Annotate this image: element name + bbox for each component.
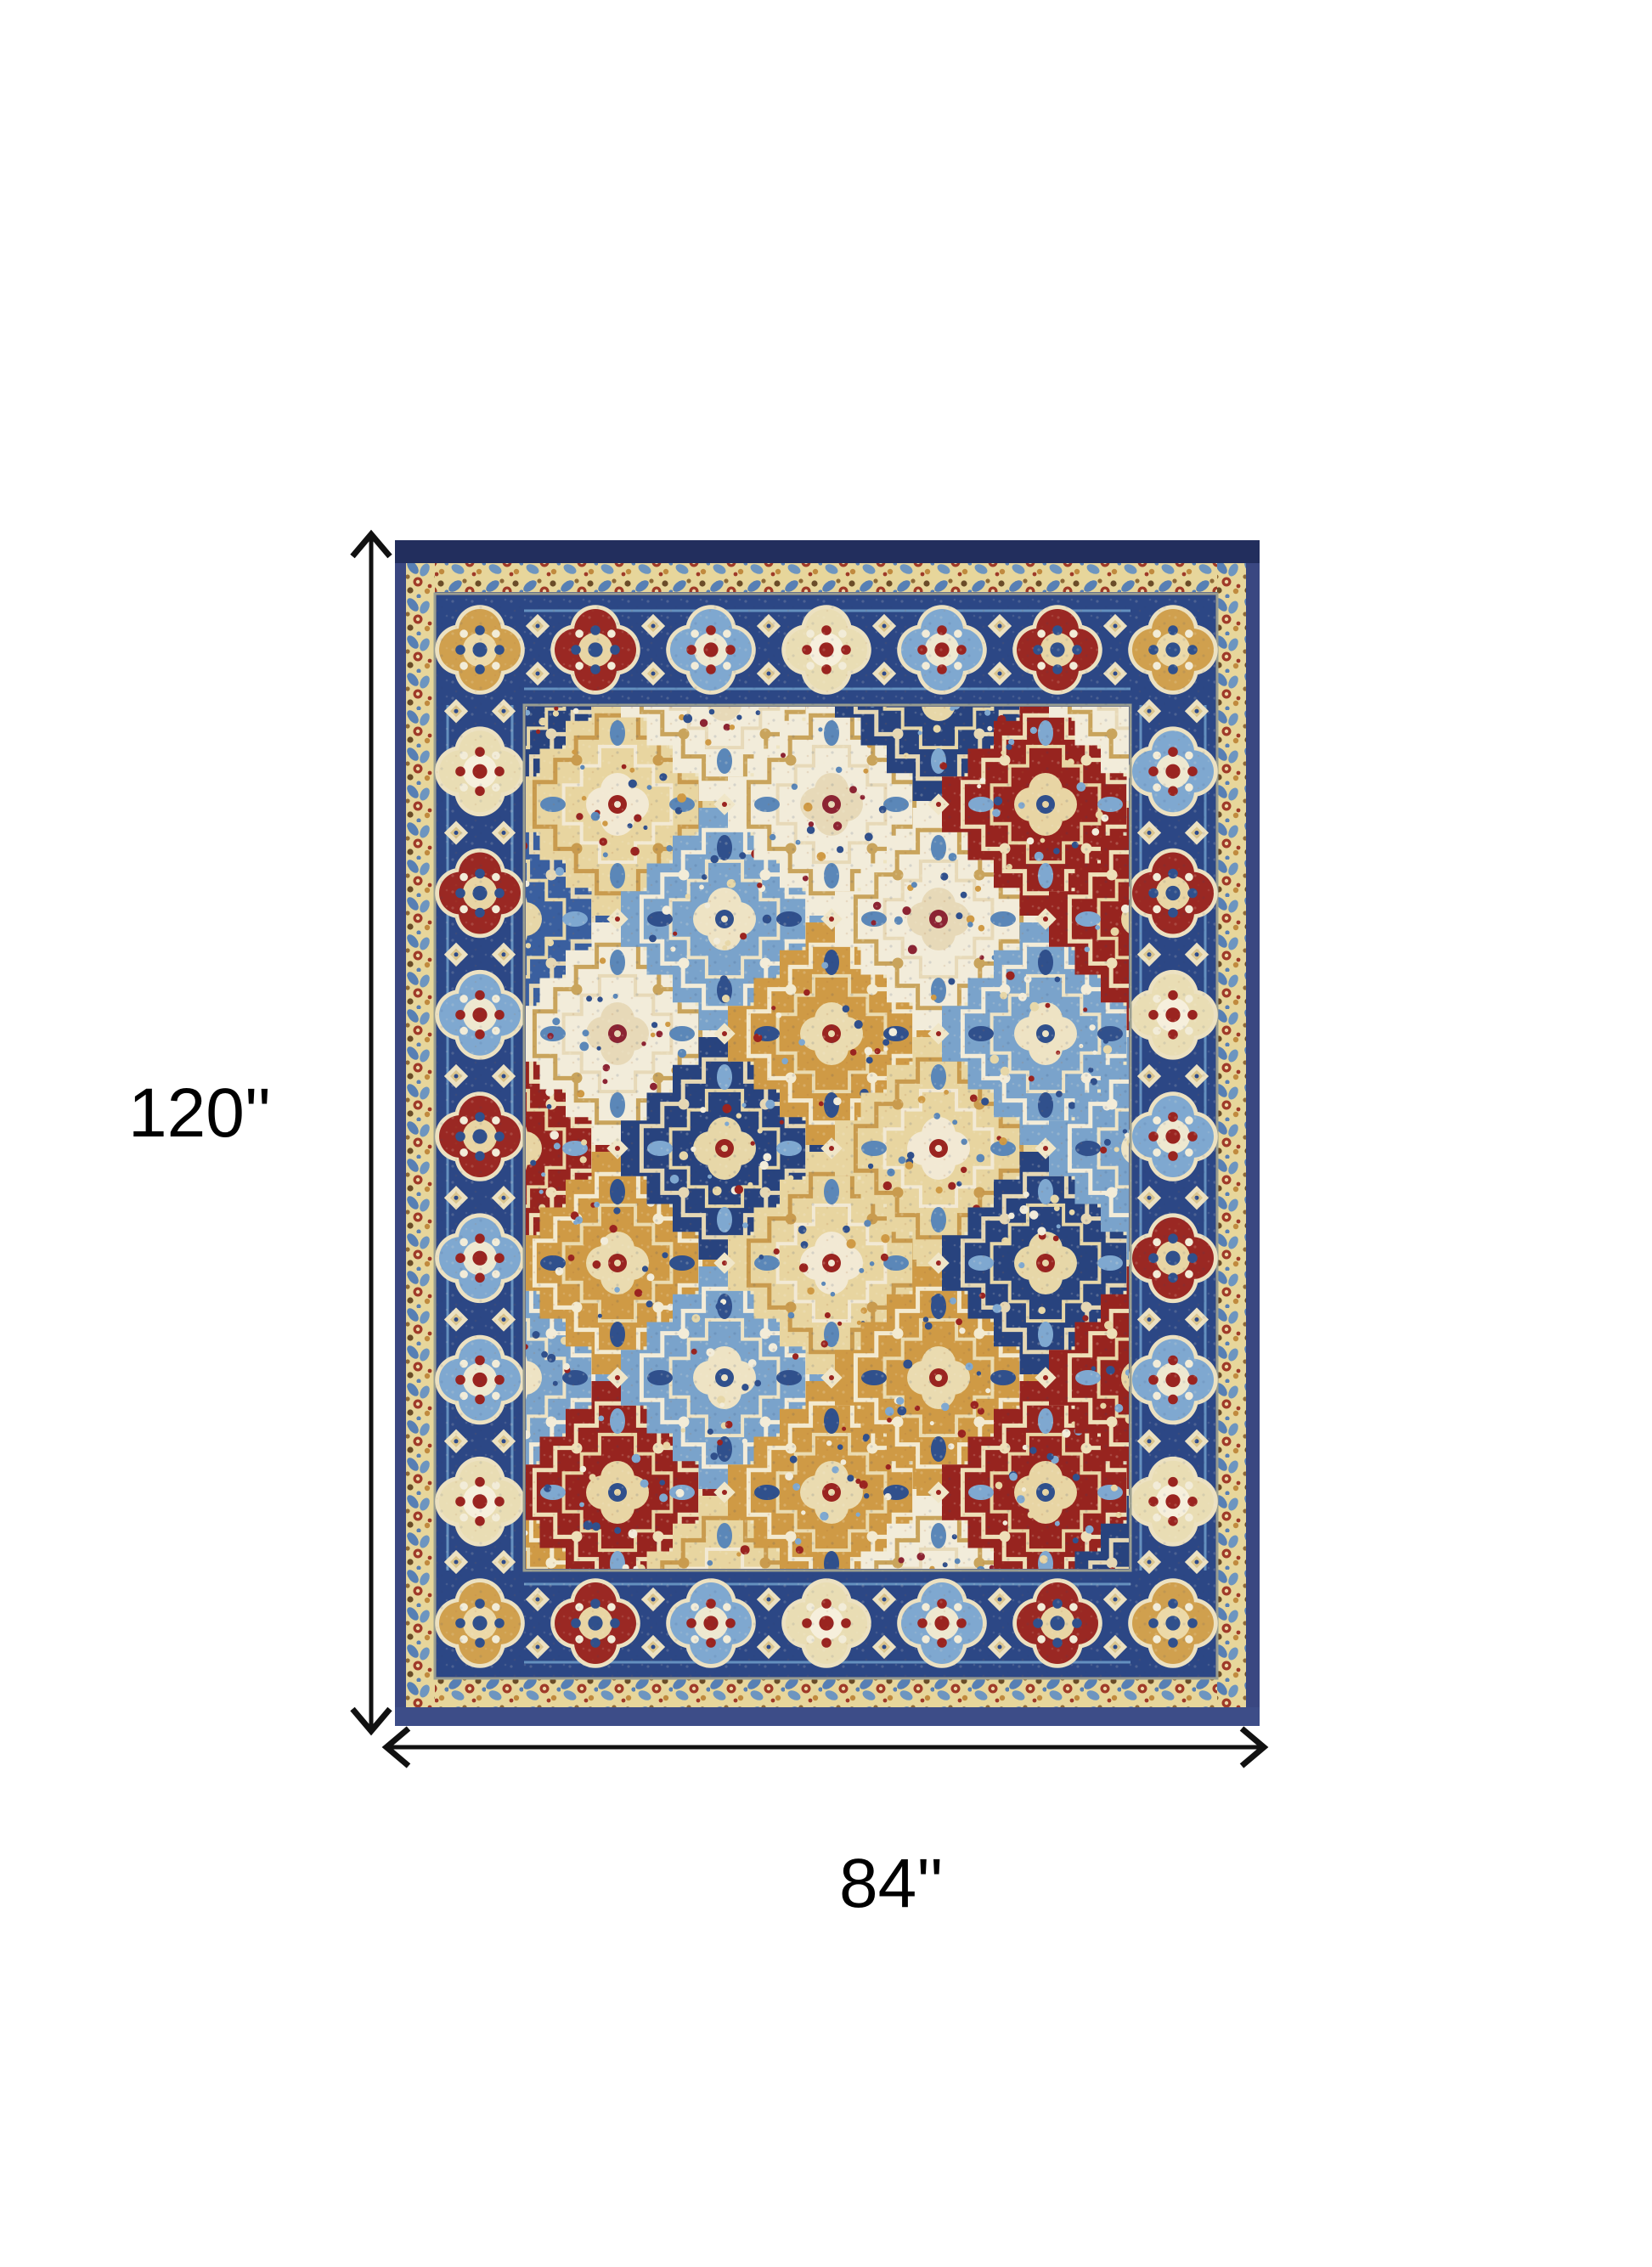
svg-text:84'': 84'': [839, 1845, 944, 1922]
svg-text:120'': 120'': [128, 1074, 271, 1152]
